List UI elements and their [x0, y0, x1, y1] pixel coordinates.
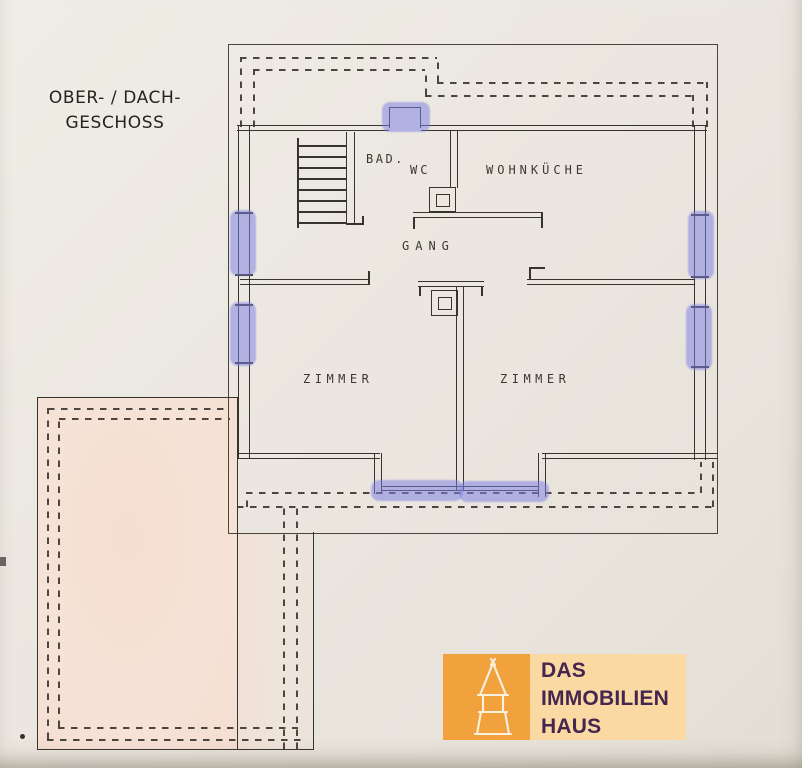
terrace-edge: [37, 397, 238, 398]
top-wall: [237, 125, 389, 131]
stair-stringer: [346, 132, 355, 225]
eave-dash: [246, 492, 248, 507]
stair-tread: [299, 167, 346, 169]
terrace-dash: [58, 727, 298, 729]
chimney-flue: [438, 297, 452, 310]
interior-wall: [456, 287, 464, 491]
left-wall: [238, 125, 250, 458]
wall-tick: [413, 218, 415, 229]
eave-dash: [240, 57, 437, 59]
door-jamb: [368, 271, 370, 285]
terrace-dash: [59, 418, 230, 420]
window-highlight-dormer: [382, 102, 430, 132]
footprint-dash: [296, 506, 298, 749]
eave-dash: [437, 57, 439, 82]
room-label-zimmer-left: ZIMMER: [303, 372, 373, 386]
room-label-zimmer-right: ZIMMER: [500, 372, 570, 386]
eave-dash: [253, 69, 255, 127]
door-jamb: [529, 267, 531, 280]
room-label-gang: GANG: [402, 239, 455, 253]
stair-tread: [299, 145, 346, 147]
page-title: OBER- / DACH- GESCHOSS: [25, 86, 205, 136]
stair-tread: [299, 211, 346, 213]
eave-dash: [425, 95, 692, 97]
terrace-dash: [58, 418, 60, 727]
logo-line2: IMMOBILIEN: [541, 685, 669, 713]
bottom-wall: [237, 453, 380, 459]
room-label-wohnkueche: WOHNKÜCHE: [486, 163, 587, 177]
eave-dash: [692, 95, 694, 127]
right-wall: [694, 125, 706, 460]
plan-outer-boundary: [228, 44, 718, 534]
footprint-dash: [283, 506, 285, 749]
terrace-edge: [313, 532, 314, 750]
building-edge: [237, 397, 238, 750]
window-highlight-south-right: [459, 481, 549, 502]
stair-stringer: [297, 138, 299, 228]
logo-banner: DAS IMMOBILIEN HAUS: [530, 654, 686, 740]
logo-square: [443, 654, 530, 740]
page-title-line1: OBER- / DACH-: [25, 86, 205, 111]
stair-tread: [299, 178, 346, 180]
terrace-edge: [37, 749, 314, 750]
eave-dash: [437, 82, 706, 84]
ink-dot: [20, 734, 25, 739]
corridor-wall: [413, 212, 543, 218]
eave-dash: [712, 462, 714, 507]
stair-tread: [299, 156, 346, 158]
tower-icon: [465, 657, 521, 737]
room-label-wc: WC: [410, 163, 430, 177]
bottom-wall: [542, 453, 718, 459]
door-jamb: [541, 212, 543, 228]
window-highlight-south-left: [371, 480, 463, 501]
interior-wall: [450, 131, 458, 188]
eave-dash: [706, 82, 708, 127]
logo-line1: DAS: [541, 657, 669, 685]
window-highlight-left-lower: [230, 302, 256, 366]
eave-dash: [425, 69, 427, 95]
terrace-dash: [47, 739, 303, 741]
logo-wordmark: DAS IMMOBILIEN HAUS: [541, 657, 669, 741]
stair-tread: [299, 189, 346, 191]
eave-dash: [237, 506, 713, 508]
scanned-floor-plan-photo: { "paper": { "background": "#ece8e1", "l…: [0, 0, 802, 768]
stair-tread: [299, 222, 346, 224]
wall-tick: [481, 287, 483, 296]
eave-dash: [240, 57, 242, 127]
door-jamb: [529, 267, 545, 269]
terrace-dash: [48, 408, 230, 410]
eave-dash: [700, 462, 702, 493]
window-highlight-right-upper: [688, 211, 714, 279]
room-label-bad: BAD.: [366, 152, 405, 166]
page-title-line2: GESCHOSS: [25, 111, 205, 136]
stair-tread: [299, 200, 346, 202]
logo-line3: HAUS: [541, 713, 669, 741]
top-wall: [421, 125, 707, 131]
corridor-wall: [527, 279, 694, 285]
corridor-wall: [240, 279, 370, 285]
logo: DAS IMMOBILIEN HAUS: [443, 654, 686, 740]
window-highlight-right-lower: [686, 304, 712, 370]
paper-edge-mark: [0, 557, 6, 566]
stairwell-strip: [238, 533, 313, 749]
eave-dash: [253, 69, 425, 71]
wall-tick: [419, 287, 421, 296]
terrace-dash: [47, 408, 49, 739]
chimney-flue: [436, 194, 450, 207]
terrace-edge: [37, 397, 38, 750]
terrace-area: [38, 398, 237, 749]
window-highlight-left-upper: [230, 210, 256, 276]
stair-step: [362, 216, 364, 225]
corridor-wall: [418, 281, 484, 287]
